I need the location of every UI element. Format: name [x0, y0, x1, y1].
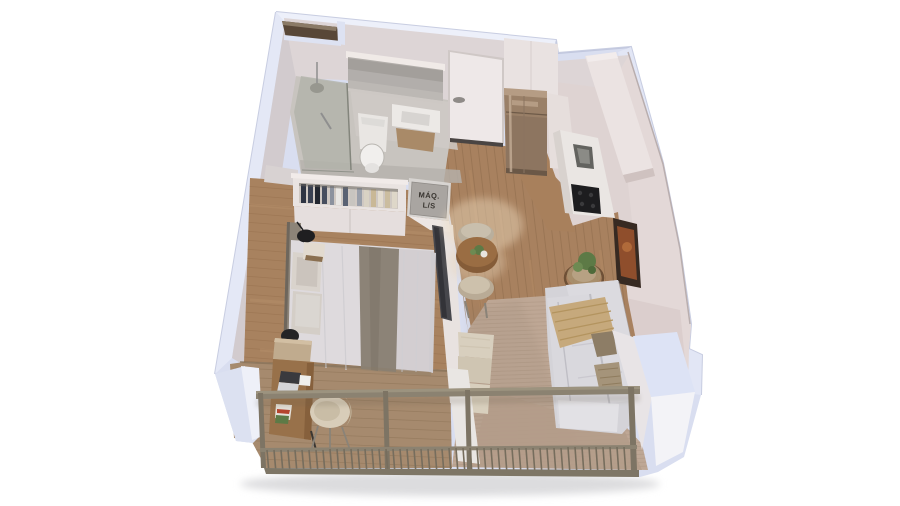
svg-text:MÁQ.: MÁQ. [418, 190, 440, 200]
svg-text:L/S: L/S [422, 201, 435, 211]
